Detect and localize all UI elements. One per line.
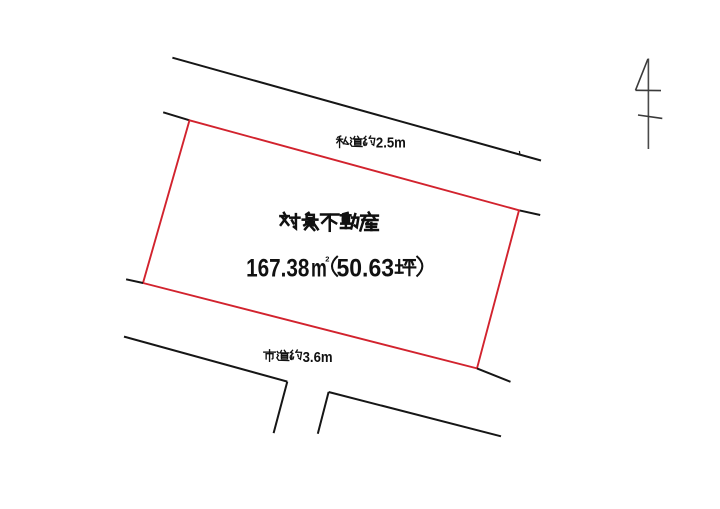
svg-text:2: 2 <box>325 255 329 264</box>
svg-text:167.38: 167.38 <box>246 254 309 282</box>
svg-text:2.5m: 2.5m <box>376 135 406 152</box>
svg-text:50.63: 50.63 <box>337 254 395 282</box>
svg-text:3.6m: 3.6m <box>303 349 333 366</box>
